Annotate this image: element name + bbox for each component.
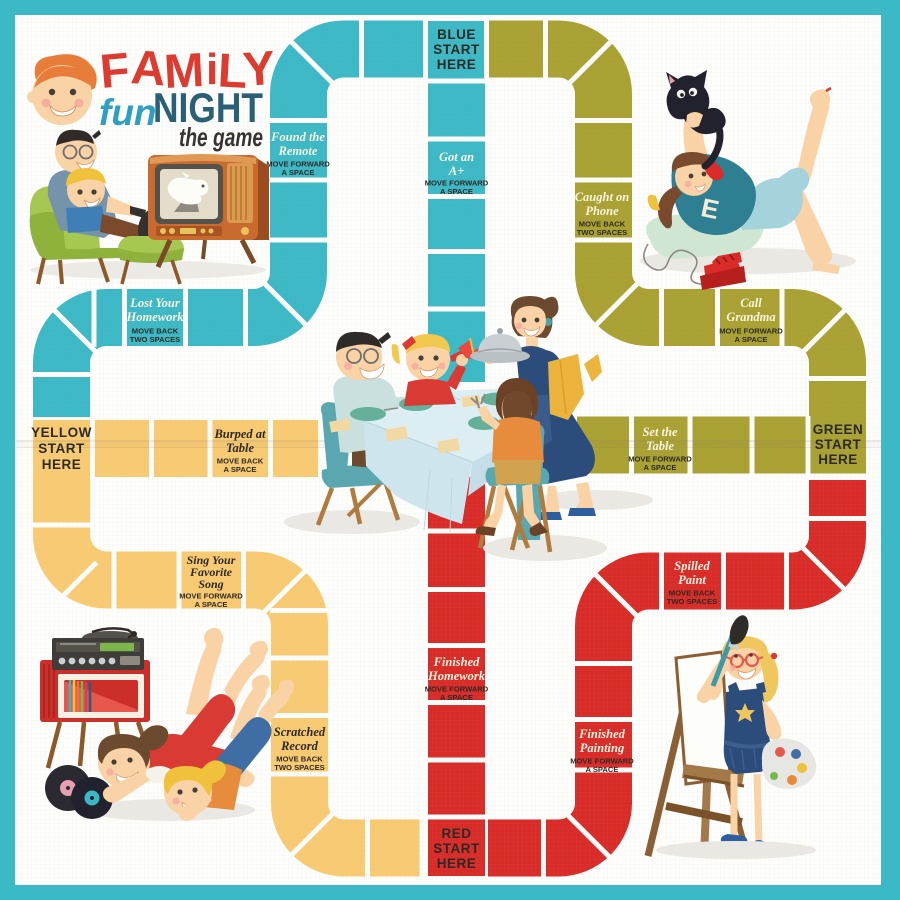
svg-text:START: START	[433, 841, 480, 856]
svg-text:TWO SPACES: TWO SPACES	[667, 597, 718, 606]
svg-text:Record: Record	[280, 739, 319, 753]
svg-text:HERE: HERE	[437, 856, 477, 871]
svg-text:Finished: Finished	[433, 655, 481, 669]
svg-text:Phone: Phone	[585, 204, 619, 218]
svg-text:the game: the game	[179, 122, 263, 152]
svg-text:A SPACE: A SPACE	[586, 765, 619, 774]
svg-text:Homework: Homework	[126, 310, 185, 324]
svg-text:A SPACE: A SPACE	[440, 693, 473, 702]
svg-text:Lost Your: Lost Your	[129, 296, 180, 310]
svg-text:A SPACE: A SPACE	[644, 463, 677, 472]
svg-text:TWO SPACES: TWO SPACES	[577, 228, 628, 237]
svg-text:Remote: Remote	[278, 144, 318, 158]
svg-text:A SPACE: A SPACE	[735, 335, 768, 344]
svg-text:TWO SPACES: TWO SPACES	[130, 335, 181, 344]
svg-text:TWO SPACES: TWO SPACES	[274, 763, 325, 772]
svg-text:Paint: Paint	[678, 573, 706, 587]
svg-text:Call: Call	[740, 296, 762, 310]
svg-text:HERE: HERE	[437, 57, 477, 72]
svg-text:Spilled: Spilled	[674, 559, 710, 573]
svg-text:fun: fun	[99, 92, 157, 133]
svg-text:A SPACE: A SPACE	[224, 465, 257, 474]
svg-text:Table: Table	[646, 439, 674, 453]
svg-text:Burped at: Burped at	[213, 427, 266, 441]
svg-text:Got an: Got an	[439, 150, 474, 164]
svg-text:Caught on: Caught on	[575, 190, 630, 204]
svg-text:START: START	[38, 441, 85, 456]
svg-text:A+: A+	[448, 164, 464, 178]
svg-text:F: F	[98, 44, 132, 99]
svg-text:A SPACE: A SPACE	[282, 168, 315, 177]
svg-text:Painting: Painting	[580, 741, 624, 755]
svg-text:YELLOW: YELLOW	[31, 425, 92, 440]
svg-text:Homework: Homework	[427, 669, 486, 683]
svg-text:START: START	[433, 42, 480, 57]
svg-text:Scratched: Scratched	[274, 725, 326, 739]
svg-text:Grandma: Grandma	[726, 310, 775, 324]
svg-text:START: START	[815, 437, 862, 452]
svg-text:HERE: HERE	[818, 452, 858, 467]
svg-text:Song: Song	[198, 577, 223, 591]
svg-text:BLUE: BLUE	[437, 27, 476, 42]
svg-text:A SPACE: A SPACE	[440, 187, 473, 196]
svg-text:Table: Table	[226, 441, 254, 455]
svg-text:RED: RED	[441, 826, 471, 841]
svg-text:HERE: HERE	[42, 457, 82, 472]
svg-text:A SPACE: A SPACE	[195, 600, 228, 609]
svg-text:GREEN: GREEN	[813, 422, 864, 437]
svg-text:Finished: Finished	[578, 727, 626, 741]
svg-text:Set the: Set the	[642, 425, 678, 439]
svg-text:Found the: Found the	[270, 130, 325, 144]
